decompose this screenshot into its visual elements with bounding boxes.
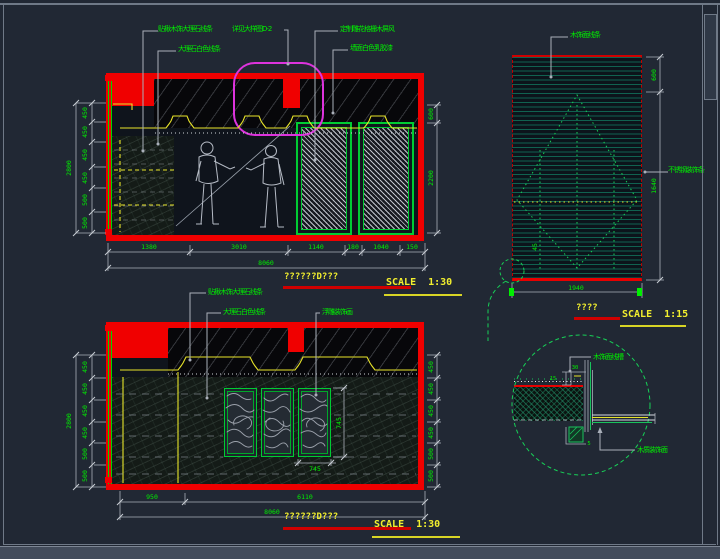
dim-value: 500 [81,448,89,460]
elev-b-scale: SCALE 1:30 [374,519,440,530]
dim-value: 450 [81,383,89,395]
dim-value: 1640 [650,178,658,194]
label-relief-art: 浮雕装饰画 [322,308,352,316]
dim-value: 150 [406,243,418,251]
dim-value: 180 [347,243,359,251]
node-detail-section: 30 15 5 [514,357,655,450]
dim-value: 45 [531,243,539,251]
scale-label: SCALE [622,309,652,320]
elev-b-dim-bottom: 950 6110 8060 [117,491,428,520]
label-wood-trim: 木饰面线条 [570,31,600,39]
label-marble-white-b: 大理石白色线条 [223,308,265,316]
label-marble-white: 大理石白色线条 [178,45,220,53]
elev-a-dim-left: 450 450 450 450 500 500 2800 [65,100,106,236]
elev-a-scale: SCALE 1:30 [386,277,452,288]
panel-leaders [550,37,669,174]
dim-value: 1040 [373,243,389,251]
dim-value: 6110 [297,493,313,501]
dim-value: 950 [146,493,158,501]
dim-total: 2800 [65,160,73,176]
elev-a-molding [113,104,417,232]
dim-value: 1940 [568,284,584,292]
elev-b-dim-left: 450 450 450 450 500 500 2800 [65,352,106,490]
dim-value: 450 [81,126,89,138]
dim-value: 5 [587,441,590,447]
dim-value: 1380 [141,243,157,251]
dim-value: 450 [81,361,89,373]
elev-a-title: ??????D??? [284,272,338,282]
elev-b-molding [120,357,417,483]
dim-value: 450 [81,107,89,119]
label-see-detail: 详见大样图D-2 [232,25,271,33]
elev-a-dentils [114,133,417,220]
dim-value: 500 [81,217,89,229]
dim-value: 745 [309,465,321,473]
dim-value: 450 [81,427,89,439]
dim-value: 15 [550,376,557,382]
dim-value: 30 [572,365,579,371]
panel-dims: 600 1640 1940 45 [509,54,664,298]
dim-value: 3010 [231,243,247,251]
label-wood-groove: 木饰面线槽 [593,353,623,361]
dim-value: 500 [81,194,89,206]
scale-label: SCALE [374,519,404,530]
dim-value: 600 [427,108,435,120]
elev-a-dim-right: 600 2200 [427,102,441,236]
scale-label: SCALE [386,277,416,288]
dim-value: 450 [427,427,435,439]
scale-value: 1:15 [664,309,688,320]
dim-value: 450 [427,405,435,417]
elev-b-panel-dims: 745 745 [294,385,347,473]
scale-underline [620,325,686,327]
label-stainless-trim: 不锈钢装饰条 [668,166,704,174]
dim-value: 450 [427,383,435,395]
cad-canvas: 1380 3010 1140 180 1040 150 8060 450 450… [0,0,720,559]
elev-a-dim-bottom: 1380 3010 1140 180 1040 150 8060 [105,243,428,271]
panel-scale: SCALE 1:15 [622,309,688,320]
scale-underline [384,294,462,296]
dim-value: 450 [81,172,89,184]
elev-b-dim-right: 450 450 450 450 500 500 [427,352,441,490]
human-figures [176,126,290,227]
dim-total: 8060 [264,508,280,516]
dim-value: 500 [81,470,89,482]
label-wood-face: 木质装饰面 [637,446,667,454]
label-latex-paint: 墙面白色乳胶漆 [350,44,392,52]
drawing-overlay: 1380 3010 1140 180 1040 150 8060 450 450… [0,0,720,559]
vertical-scrollbar[interactable] [702,4,718,545]
elev-a-leaders [142,30,349,162]
dim-total: 8060 [258,259,274,267]
scale-value: 1:30 [428,277,452,288]
dim-value: 600 [650,69,658,81]
dim-end-marker [637,288,642,296]
dim-value: 745 [335,417,343,429]
status-bar [0,546,720,559]
dim-value: 450 [81,149,89,161]
dim-value: 450 [81,405,89,417]
dim-end-marker [509,288,514,296]
scale-value: 1:30 [416,519,440,530]
dim-total: 2800 [65,413,73,429]
dim-value: 2200 [427,170,435,186]
panel-title: ???? [576,303,598,313]
label-marble-trim-b: 贴楸木饰大理石线条 [208,288,262,296]
dim-value: 500 [427,470,435,482]
elev-b-wall-joints [116,394,416,474]
scrollbar-thumb[interactable] [704,14,717,100]
dim-value: 1140 [308,243,324,251]
label-carved-screen: 定制雕花格栅木屏风 [340,25,394,33]
label-marble-trim: 贴楸木饰大理石线条 [158,25,212,33]
dim-value: 450 [427,361,435,373]
title-underline [574,317,620,320]
elev-b-title: ??????D??? [284,512,338,522]
relief-art-strokes [226,394,327,448]
dim-value: 500 [427,448,435,460]
scale-underline [372,536,460,538]
